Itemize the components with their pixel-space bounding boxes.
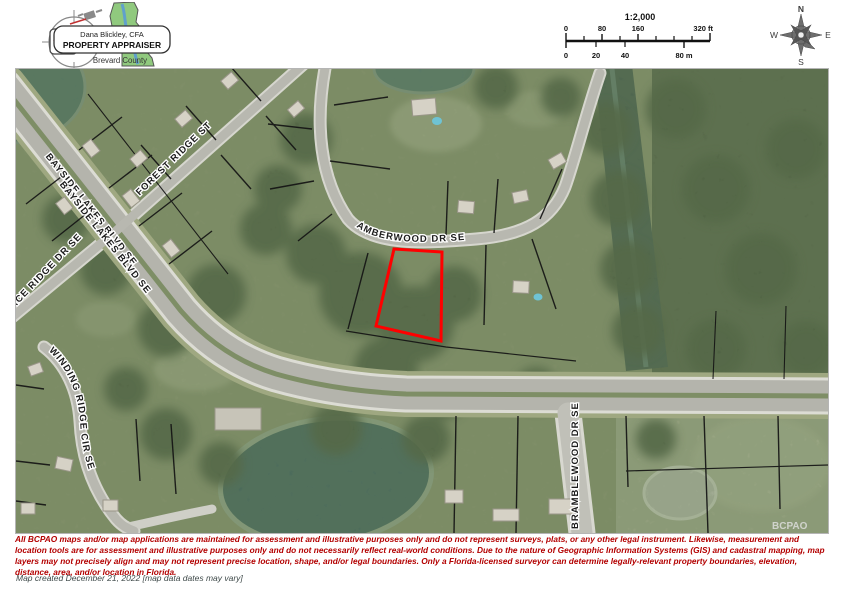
scale-m-80: 80 m — [675, 51, 692, 60]
scale-ft-320: 320 ft — [693, 24, 713, 33]
compass-w: W — [770, 30, 778, 40]
compass-rose-icon: N E S W — [770, 4, 832, 66]
page: Dana Blickley, CFA PROPERTY APPRAISER Br… — [0, 0, 842, 596]
county-name: Brevard County — [93, 56, 147, 65]
aerial-map-canvas: BAYSIDE LAKES BLVD SE BAYSIDE LAKES BLVD… — [16, 69, 828, 533]
map-created-text: Map created December 21, 2022 [map data … — [16, 573, 243, 583]
scale-ft-80: 80 — [598, 24, 606, 33]
scale-bar-line — [566, 33, 710, 48]
scale-m-40: 40 — [621, 51, 629, 60]
scale-m-labels: 0 20 40 80 m — [564, 51, 693, 60]
scale-ft-160: 160 — [632, 24, 645, 33]
scale-ft-labels: 0 80 160 320 ft — [564, 24, 714, 33]
scale-m-0: 0 — [564, 51, 568, 60]
scale-m-20: 20 — [592, 51, 600, 60]
appraiser-name: Dana Blickley, CFA — [80, 30, 144, 39]
street-label-bramblewood: BRAMBLEWOOD DR SE — [570, 402, 581, 529]
scale-ft-0: 0 — [564, 24, 568, 33]
bcpao-watermark: BCPAO — [772, 521, 808, 532]
compass-n: N — [798, 4, 804, 14]
aerial-map: BAYSIDE LAKES BLVD SE BAYSIDE LAKES BLVD… — [15, 68, 829, 534]
appraiser-title: PROPERTY APPRAISER — [63, 40, 161, 50]
compass-s: S — [798, 57, 804, 66]
bcpao-logo: Dana Blickley, CFA PROPERTY APPRAISER Br… — [10, 2, 210, 68]
scale-ratio: 1:2,000 — [625, 12, 656, 22]
disclaimer-text: All BCPAO maps and/or map applications a… — [15, 534, 831, 578]
compass-e: E — [825, 30, 831, 40]
scale-bar: 1:2,000 0 80 160 320 ft 0 20 40 — [553, 8, 733, 62]
